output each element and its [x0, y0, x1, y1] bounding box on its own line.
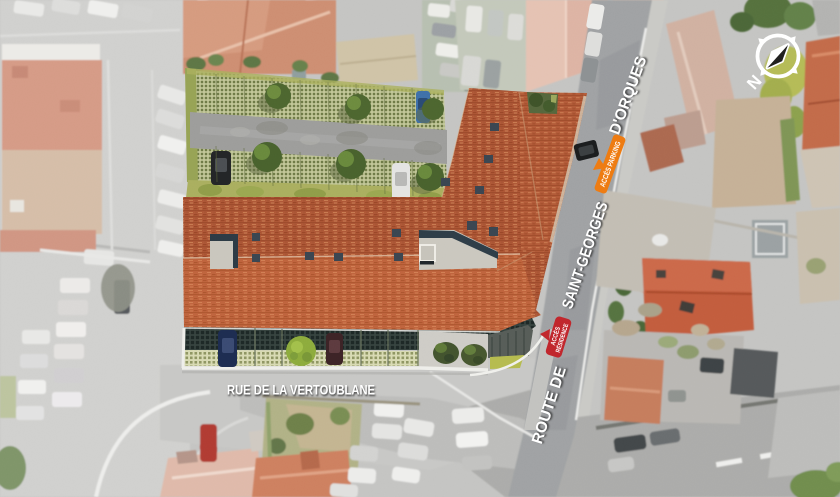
svg-text:RUE DE LA VERTOUBLANE: RUE DE LA VERTOUBLANE: [227, 382, 375, 398]
